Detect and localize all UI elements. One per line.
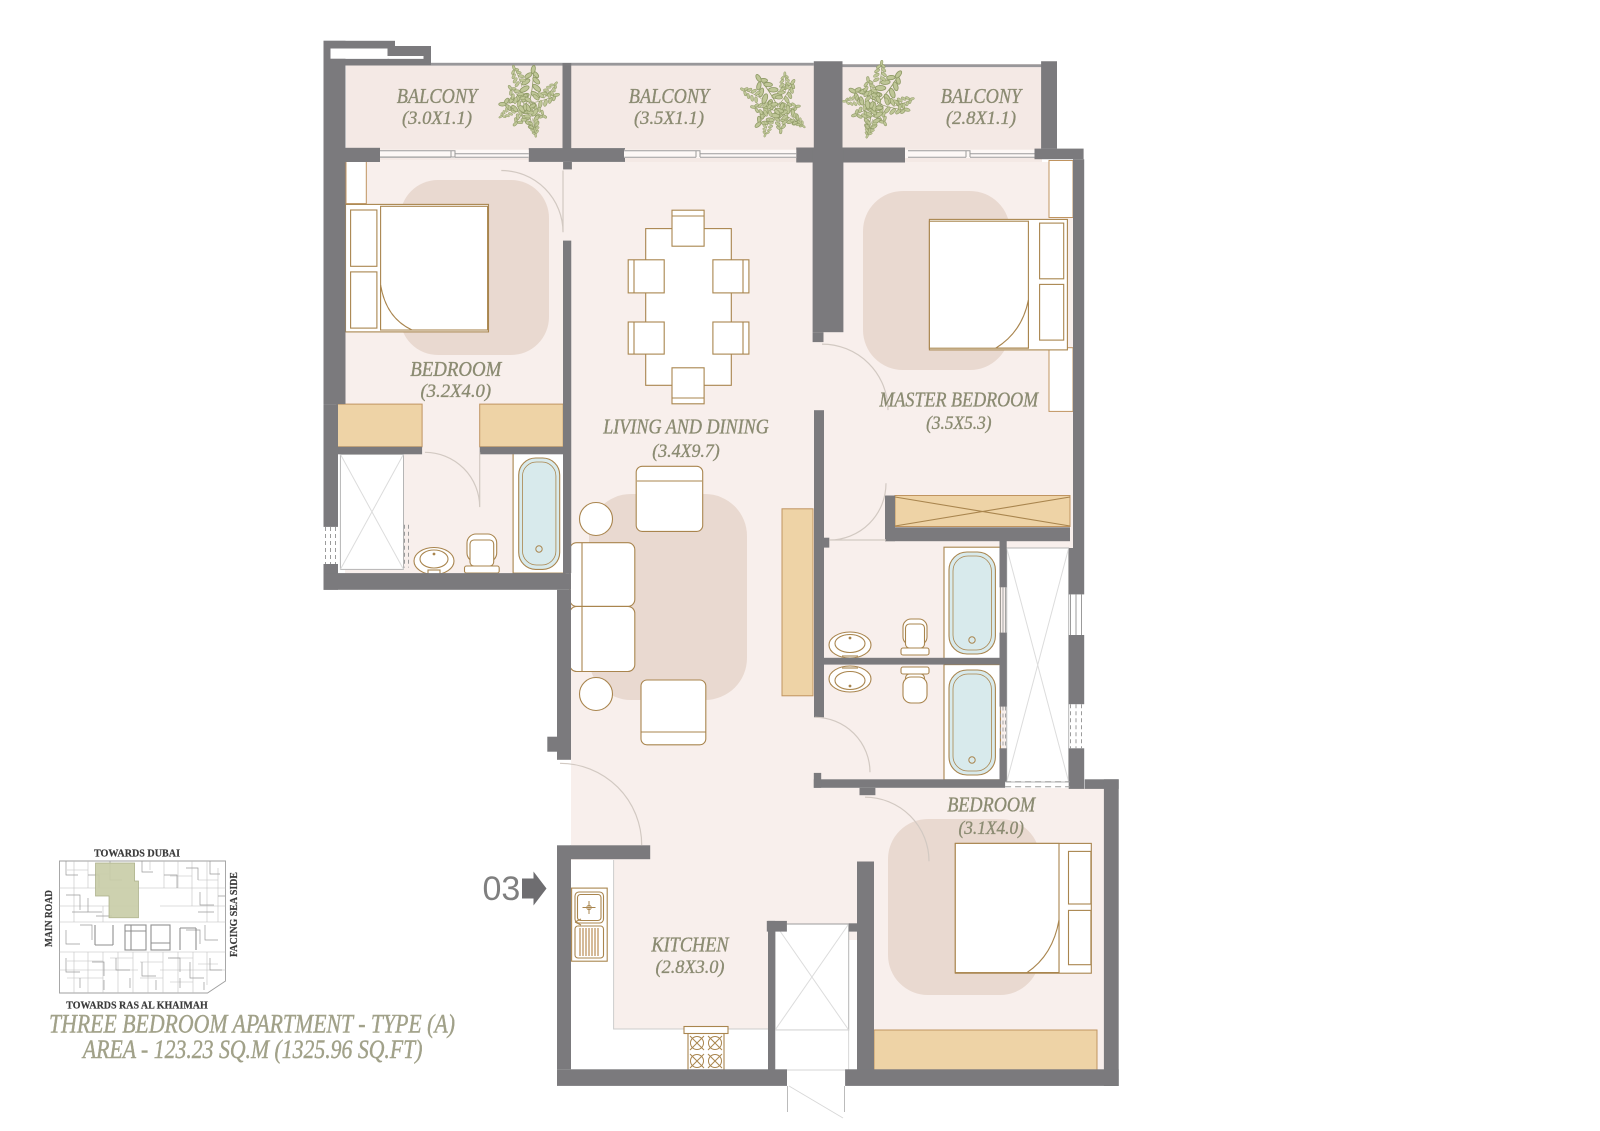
- svg-text:(2.8X3.0): (2.8X3.0): [656, 957, 725, 978]
- svg-text:BALCONY: BALCONY: [397, 84, 480, 108]
- svg-text:MAIN ROAD: MAIN ROAD: [43, 890, 55, 947]
- svg-text:(3.2X4.0): (3.2X4.0): [420, 381, 491, 402]
- svg-text:KITCHEN: KITCHEN: [651, 933, 730, 957]
- svg-text:TOWARDS DUBAI: TOWARDS DUBAI: [94, 848, 180, 860]
- svg-text:03: 03: [482, 870, 520, 908]
- svg-text:(3.4X9.7): (3.4X9.7): [652, 441, 720, 462]
- svg-text:BEDROOM: BEDROOM: [947, 793, 1036, 817]
- svg-text:FACING SEA SIDE: FACING SEA SIDE: [228, 872, 240, 957]
- svg-text:(3.1X4.0): (3.1X4.0): [959, 818, 1024, 839]
- svg-text:BEDROOM: BEDROOM: [410, 357, 502, 381]
- svg-text:LIVING AND DINING: LIVING AND DINING: [602, 415, 768, 439]
- svg-text:(2.8X1.1): (2.8X1.1): [946, 108, 1016, 129]
- svg-text:BALCONY: BALCONY: [941, 84, 1024, 108]
- svg-text:AREA - 123.23 SQ.M (1325.96 SQ: AREA - 123.23 SQ.M (1325.96 SQ.FT): [81, 1035, 422, 1064]
- svg-text:(3.5X5.3): (3.5X5.3): [926, 413, 991, 434]
- svg-text:(3.5X1.1): (3.5X1.1): [634, 108, 704, 129]
- svg-text:MASTER BEDROOM: MASTER BEDROOM: [879, 388, 1040, 412]
- svg-text:BALCONY: BALCONY: [629, 84, 712, 108]
- svg-text:(3.0X1.1): (3.0X1.1): [402, 108, 472, 129]
